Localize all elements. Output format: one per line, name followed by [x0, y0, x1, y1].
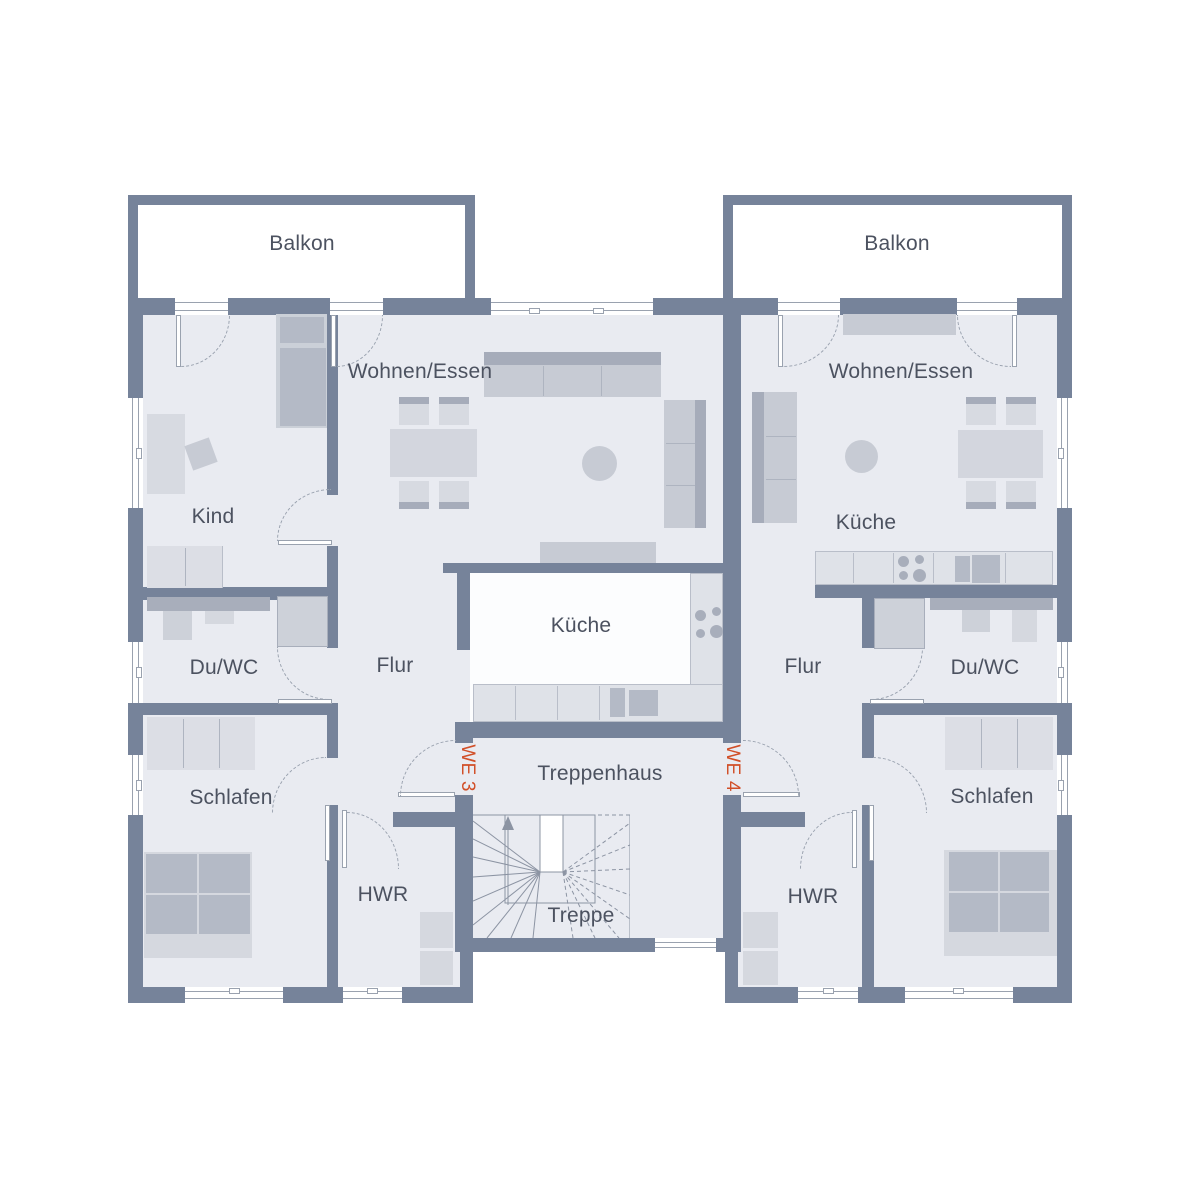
balcony-right-wall-top — [723, 195, 1072, 205]
bath-cabinet-right — [1012, 610, 1037, 642]
wall-left — [128, 298, 143, 398]
shower-left — [277, 596, 328, 647]
wall-left — [128, 815, 143, 1003]
stairwell-wall-top — [457, 722, 740, 738]
bed-left-panel — [146, 895, 197, 934]
dryer-left — [420, 951, 453, 985]
floor-plan: Balkon Balkon Wohnen/Essen Wohnen/Essen … — [0, 0, 1200, 1200]
hob-burner — [696, 629, 705, 638]
door-leaf-utility-right — [852, 810, 857, 868]
counter-divider — [853, 553, 854, 583]
bath-shelf-left — [205, 611, 234, 624]
sideboard-right — [843, 314, 956, 335]
label-hall-left: Flur — [377, 654, 414, 678]
bed-left-panel — [199, 854, 250, 893]
sofa-left-side — [664, 400, 706, 528]
window-bedroom-bottom-right — [905, 987, 1013, 1003]
chair — [966, 397, 996, 425]
bed-left-panel — [199, 895, 250, 934]
label-kitchen-right: Küche — [836, 511, 897, 535]
label-living-left: Wohnen/Essen — [348, 360, 492, 384]
wardrobe-divider — [981, 719, 982, 768]
hob-burner — [915, 555, 924, 564]
label-child: Kind — [192, 505, 235, 529]
wardrobe-divider — [185, 548, 186, 586]
bed-child-pillow — [280, 317, 324, 343]
wardrobe-bedroom-left — [147, 717, 255, 770]
dining-table-right — [958, 430, 1043, 478]
counter-divider — [893, 553, 894, 583]
label-utility-right: HWR — [788, 885, 839, 909]
wall-bath-hall-right — [862, 598, 874, 648]
bed-right-panel — [1000, 893, 1049, 932]
counter-divider — [1005, 553, 1006, 583]
balcony-left-wall-right — [465, 195, 475, 300]
label-unit-left: WE 3 — [456, 744, 478, 791]
label-stairwell: Treppenhaus — [537, 762, 662, 786]
balcony-door-left-2 — [330, 298, 383, 315]
bed-right-panel — [1000, 852, 1049, 891]
chair — [439, 397, 469, 425]
door-leaf-balcony-right-2 — [1012, 315, 1017, 367]
washer-left — [420, 912, 453, 948]
door-leaf-bedroom-right — [869, 805, 874, 861]
label-bedroom-left: Schlafen — [189, 786, 272, 810]
sofa-divider — [666, 485, 695, 486]
bed-right-panel — [949, 852, 998, 891]
dining-table-left — [390, 429, 477, 477]
counter-divider — [515, 686, 516, 720]
wall-bedroom-hall-right — [862, 715, 874, 758]
label-balcony-right: Balkon — [864, 232, 929, 256]
wardrobe-divider — [219, 719, 220, 768]
chair — [399, 481, 429, 509]
entry-recess — [473, 952, 725, 1003]
chair — [439, 481, 469, 509]
sofa-divider — [601, 366, 602, 396]
label-bedroom-right: Schlafen — [950, 785, 1033, 809]
wall-right — [1057, 508, 1072, 642]
sofa-divider — [543, 366, 544, 396]
wall-bottom — [858, 987, 905, 1003]
sofa-divider — [766, 479, 796, 480]
wall-bath-bedroom — [143, 703, 338, 715]
wall-left — [128, 508, 143, 642]
oven-left — [629, 690, 658, 716]
label-bath-right: Du/WC — [951, 656, 1020, 680]
label-unit-right: WE 4 — [721, 744, 743, 791]
balcony-door-right-2 — [957, 298, 1017, 315]
counter-divider — [557, 686, 558, 720]
hob-burner — [710, 625, 723, 638]
chair — [1006, 481, 1036, 509]
window-child-left — [128, 398, 143, 508]
chair — [1006, 397, 1036, 425]
label-hall-right: Flur — [785, 655, 822, 679]
vanity-right — [930, 598, 1053, 610]
wall-utility-left — [393, 812, 472, 827]
kitchen-counter-left-bottom — [473, 684, 723, 722]
label-bath-left: Du/WC — [190, 656, 259, 680]
window-bedroom-left — [128, 755, 143, 815]
hob-burner — [695, 610, 706, 621]
wall-top — [653, 298, 778, 315]
window-bedroom-bottom-left — [185, 987, 283, 1003]
bed-right-panel — [949, 893, 998, 932]
kitchen-counter-right — [815, 551, 1053, 585]
wardrobe-divider — [1017, 719, 1018, 768]
counter-divider — [599, 686, 600, 720]
wall-bottom — [1013, 987, 1072, 1003]
wall-left — [128, 703, 143, 755]
counter-divider — [933, 553, 934, 583]
window-utility-bottom-left — [343, 987, 402, 1003]
balcony-left-wall-left — [128, 195, 138, 300]
wall-top — [383, 298, 491, 315]
wall-kitchen-bath-right — [815, 585, 1057, 598]
hob-burner — [898, 556, 909, 567]
window-utility-bottom-right — [798, 987, 858, 1003]
window-living-right — [1057, 398, 1072, 508]
chair — [966, 481, 996, 509]
sofa-right-side — [752, 392, 797, 523]
oven-right — [972, 555, 1000, 583]
bed-child-mattress — [280, 348, 326, 426]
chair — [399, 397, 429, 425]
wall-top — [840, 298, 957, 315]
wall-right — [1057, 703, 1072, 755]
washer-right — [743, 912, 778, 948]
sofa-divider — [666, 443, 695, 444]
dishwasher-left — [610, 688, 625, 717]
dryer-right — [743, 951, 778, 985]
label-kitchen-left: Küche — [551, 614, 612, 638]
wall-kitchen-left-side — [457, 563, 470, 650]
wall-bath-bedroom-right — [862, 703, 1057, 715]
desk-child — [147, 414, 185, 494]
washbasin-right — [962, 610, 990, 632]
stairwell-bottom-wall — [455, 938, 655, 952]
wardrobe-bedroom-right — [945, 717, 1053, 770]
hob-burner — [899, 571, 908, 580]
balcony-right-wall-right — [1062, 195, 1072, 300]
wall-top — [228, 298, 330, 315]
shower-right — [874, 598, 925, 649]
sideboard-left — [540, 542, 656, 563]
wall-bedroom-hall — [327, 715, 338, 758]
wardrobe-divider — [183, 719, 184, 768]
label-balcony-left: Balkon — [269, 232, 334, 256]
wall-kitchen-left-top — [443, 563, 723, 573]
window-bath-right — [1057, 642, 1072, 703]
party-wall — [723, 315, 741, 743]
dishwasher-right — [955, 556, 970, 582]
door-leaf-bath-right — [870, 699, 924, 704]
door-leaf-bedroom-left — [325, 805, 330, 861]
recess-wall-right — [725, 952, 738, 1003]
label-stairs: Treppe — [548, 904, 615, 928]
coffee-table-left — [582, 446, 617, 481]
wall-right — [1057, 815, 1072, 1003]
label-living-right: Wohnen/Essen — [829, 360, 973, 384]
sofa-divider — [766, 436, 796, 437]
balcony-right-wall-left — [723, 195, 733, 300]
vanity-left — [147, 597, 270, 611]
wall-utility-right — [725, 812, 805, 827]
coffee-table-right — [845, 440, 878, 473]
recess-wall-left — [460, 952, 473, 1003]
label-utility-left: HWR — [358, 883, 409, 907]
wall-bottom — [283, 987, 343, 1003]
window-stairwell — [655, 938, 716, 952]
wall-bottom — [128, 987, 185, 1003]
hob-burner — [712, 607, 721, 616]
sofa-left-long — [484, 352, 661, 397]
bed-left-panel — [146, 854, 197, 893]
balcony-door-left-1 — [175, 298, 228, 315]
balcony-left-wall-top — [128, 195, 475, 205]
window-bath-left — [128, 642, 143, 703]
wall-right — [1057, 298, 1072, 398]
washbasin-left — [163, 611, 192, 640]
window-top-living-left — [491, 298, 653, 315]
window-bedroom-right — [1057, 755, 1072, 815]
balcony-door-right-1 — [778, 298, 840, 315]
hob-burner — [913, 569, 926, 582]
wall-bath-hall — [327, 600, 338, 648]
